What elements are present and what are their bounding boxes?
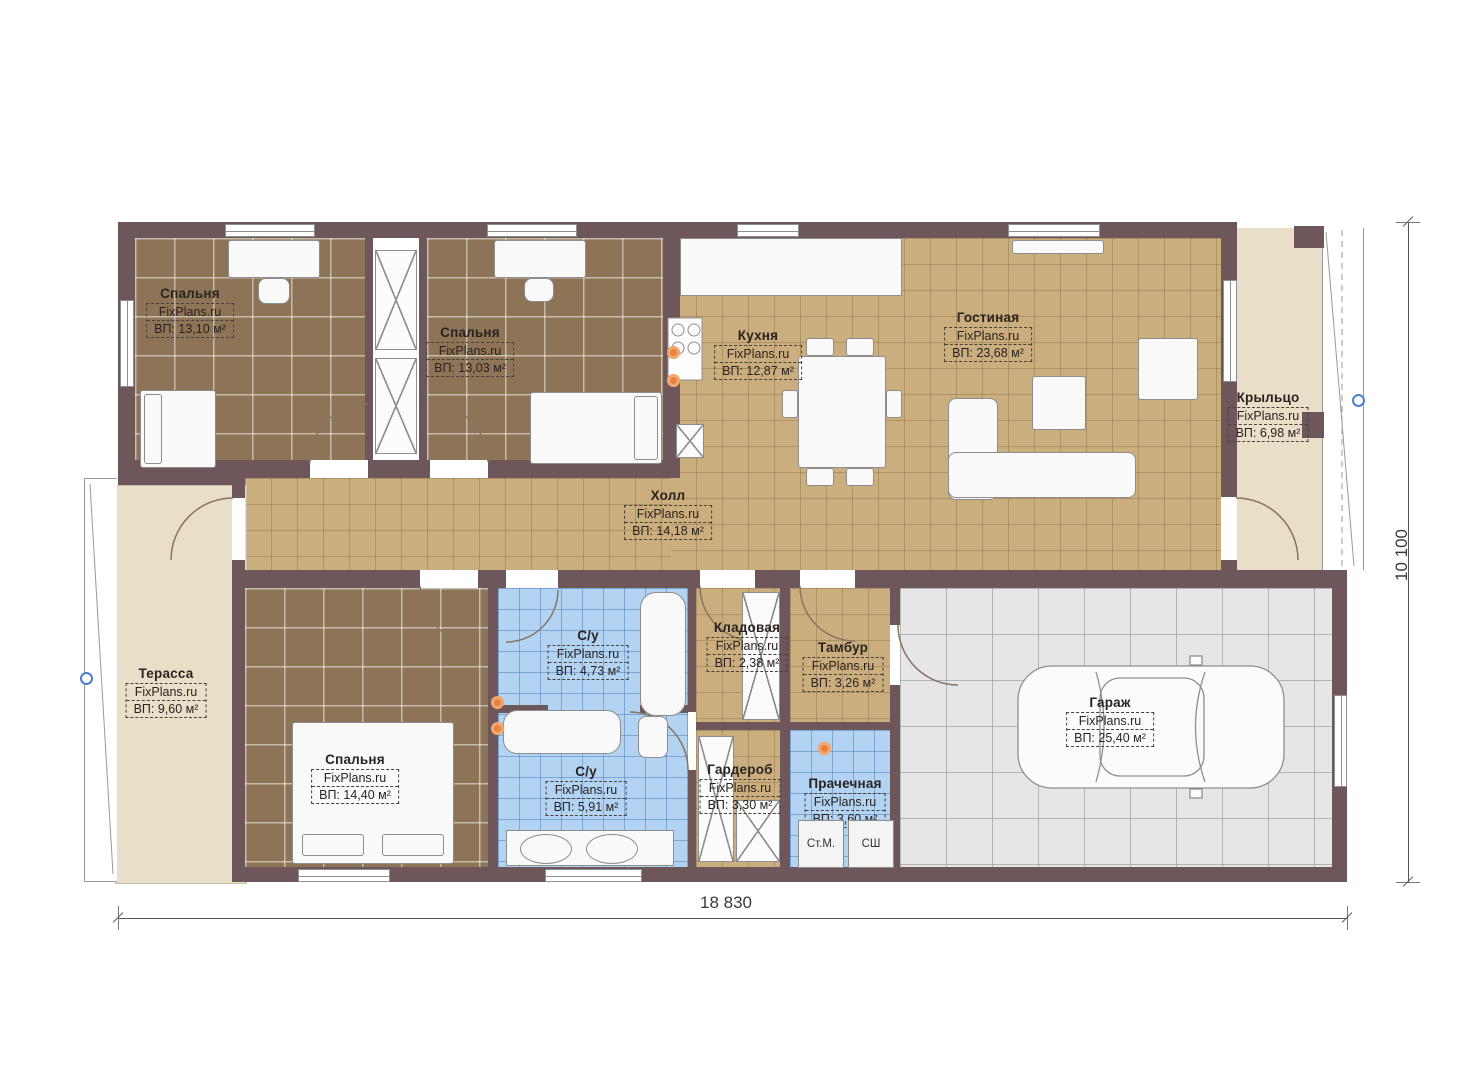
room-name: Кухня: [714, 328, 802, 343]
room-name: Тамбур: [803, 640, 884, 655]
room-area: ВП: 6,98 м²: [1229, 425, 1308, 441]
dimension-height: 10 100: [1392, 529, 1412, 581]
pillow: [144, 394, 162, 464]
room-label-terrace: Терасса FixPlans.ru ВП: 9,60 м²: [126, 666, 207, 718]
room-label-vestibule: Тамбур FixPlans.ru ВП: 3,26 м²: [803, 640, 884, 692]
watermark: FixPlans.ru: [1229, 408, 1308, 425]
dimension-width: 18 830: [700, 893, 752, 913]
room-name: Кладовая: [707, 620, 788, 635]
room-area: ВП: 14,18 м²: [625, 523, 711, 539]
watermark: FixPlans.ru: [715, 346, 801, 363]
pillow: [302, 834, 364, 856]
room-label-porch: Крыльцо FixPlans.ru ВП: 6,98 м²: [1228, 390, 1309, 442]
toilet: [638, 716, 668, 758]
sink: [520, 834, 572, 864]
chair: [846, 468, 874, 486]
wall-lamp-icon: [667, 374, 680, 387]
sofa: [948, 452, 1136, 498]
wall-lamp-icon: [491, 722, 504, 735]
room-area: ВП: 25,40 м²: [1067, 730, 1153, 746]
washer-label: Ст.М.: [807, 838, 835, 850]
wall-lamp-icon: [818, 742, 831, 755]
room-label-garage: Гараж FixPlans.ru ВП: 25,40 м²: [1066, 695, 1154, 747]
room-name: Гардероб: [700, 762, 781, 777]
room-name: Терасса: [126, 666, 207, 681]
kitchen-cabinet: [676, 424, 704, 458]
bathtub: [640, 592, 686, 716]
side-table: [1138, 338, 1198, 400]
room-label-hall: Холл FixPlans.ru ВП: 14,18 м²: [624, 488, 712, 540]
wall-lamp-icon: [491, 696, 504, 709]
watermark: FixPlans.ru: [625, 506, 711, 523]
kitchen-counter: [680, 238, 902, 296]
room-area: ВП: 23,68 м²: [945, 345, 1031, 361]
watermark: FixPlans.ru: [547, 782, 626, 799]
coffee-table: [1032, 376, 1086, 430]
room-name: С/у: [548, 628, 629, 643]
chair: [258, 278, 290, 304]
sink: [586, 834, 638, 864]
tv-console: [1012, 240, 1104, 254]
room-name: Гараж: [1066, 695, 1154, 710]
watermark: FixPlans.ru: [549, 646, 628, 663]
chair: [886, 390, 902, 418]
watermark: FixPlans.ru: [708, 638, 787, 655]
room-name: Спальня: [146, 286, 234, 301]
room-area: ВП: 9,60 м²: [127, 701, 206, 717]
room-area: ВП: 13,03 м²: [427, 360, 513, 376]
room-name: Прачечная: [805, 776, 886, 791]
bathtub: [503, 710, 621, 754]
room-label-kitchen: Кухня FixPlans.ru ВП: 12,87 м²: [714, 328, 802, 380]
chair: [524, 278, 554, 302]
room-label-bedroom-2: Спальня FixPlans.ru ВП: 13,03 м²: [426, 325, 514, 377]
desk: [494, 240, 586, 278]
room-name: Холл: [624, 488, 712, 503]
room-label-bathroom-1: С/у FixPlans.ru ВП: 4,73 м²: [548, 628, 629, 680]
chair: [806, 338, 834, 356]
room-name: Крыльцо: [1228, 390, 1309, 405]
room-name: Спальня: [426, 325, 514, 340]
floor-plan: Ст.М. СШ Спальня FixPlans.ru ВП: 13,10 м…: [0, 0, 1474, 1080]
room-area: ВП: 4,73 м²: [549, 663, 628, 679]
watermark: FixPlans.ru: [127, 684, 206, 701]
dimension-line-bottom: [118, 918, 1347, 919]
room-label-bedroom-1: Спальня FixPlans.ru ВП: 13,10 м²: [146, 286, 234, 338]
watermark: FixPlans.ru: [701, 780, 780, 797]
desk: [228, 240, 320, 278]
room-area: ВП: 13,10 м²: [147, 321, 233, 337]
pillow: [382, 834, 444, 856]
washing-machine: Ст.М.: [798, 820, 844, 868]
room-label-wardrobe: Гардероб FixPlans.ru ВП: 3,30 м²: [700, 762, 781, 814]
watermark: FixPlans.ru: [312, 770, 398, 787]
room-name: Спальня: [311, 752, 399, 767]
room-area: ВП: 3,26 м²: [804, 675, 883, 691]
watermark: FixPlans.ru: [427, 343, 513, 360]
watermark: FixPlans.ru: [806, 794, 885, 811]
room-label-living: Гостиная FixPlans.ru ВП: 23,68 м²: [944, 310, 1032, 362]
watermark: FixPlans.ru: [1067, 713, 1153, 730]
room-label-bathroom-2: С/у FixPlans.ru ВП: 5,91 м²: [546, 764, 627, 816]
room-area: ВП: 12,87 м²: [715, 363, 801, 379]
room-area: ВП: 14,40 м²: [312, 787, 398, 803]
room-name: С/у: [546, 764, 627, 779]
chair: [806, 468, 834, 486]
closet-shelves: [375, 358, 417, 454]
room-name: Гостиная: [944, 310, 1032, 325]
room-label-bedroom-3: Спальня FixPlans.ru ВП: 14,40 м²: [311, 752, 399, 804]
room-label-storage: Кладовая FixPlans.ru ВП: 2,38 м²: [707, 620, 788, 672]
watermark: FixPlans.ru: [804, 658, 883, 675]
room-area: ВП: 2,38 м²: [708, 655, 787, 671]
wall-lamp-icon: [667, 346, 680, 359]
room-area: ВП: 5,91 м²: [547, 799, 626, 815]
dining-table: [798, 356, 886, 468]
room-area: ВП: 3,30 м²: [701, 797, 780, 813]
pillow: [634, 396, 658, 460]
level-marker-icon: [1352, 394, 1365, 407]
chair: [782, 390, 798, 418]
watermark: FixPlans.ru: [147, 304, 233, 321]
chair: [846, 338, 874, 356]
level-marker-icon: [80, 672, 93, 685]
drying-cabinet: СШ: [848, 820, 894, 868]
dryer-label: СШ: [862, 838, 881, 850]
closet-shelves: [375, 250, 417, 350]
watermark: FixPlans.ru: [945, 328, 1031, 345]
